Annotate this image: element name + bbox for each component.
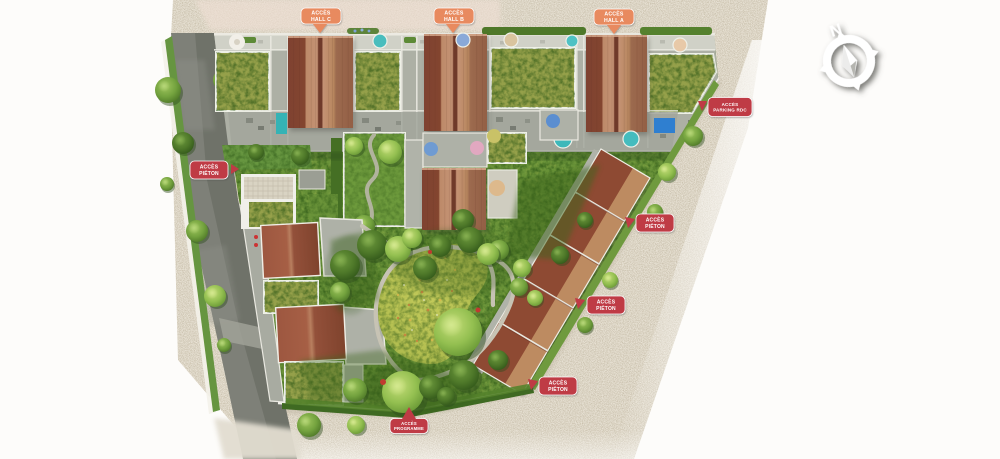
svg-text:PIÉTON: PIÉTON [645,222,665,230]
svg-text:ACCÈS: ACCÈS [604,10,623,18]
svg-text:ACCÈS: ACCÈS [549,379,568,387]
svg-text:HALL C: HALL C [311,17,331,23]
svg-text:ACCÈS: ACCÈS [401,421,417,426]
svg-text:PROGRAMME: PROGRAMME [394,426,424,431]
svg-text:ACCÈS: ACCÈS [646,216,665,224]
svg-text:ACCÈS: ACCÈS [444,9,463,17]
svg-text:PIÉTON: PIÉTON [548,385,568,393]
svg-text:ACCÈS: ACCÈS [200,163,219,171]
svg-text:ACCÈS: ACCÈS [597,298,616,306]
svg-text:ACCÈS: ACCÈS [722,100,739,107]
svg-text:ACCÈS: ACCÈS [311,9,330,17]
svg-text:PIÉTON: PIÉTON [596,304,616,312]
svg-text:PARKING RDC: PARKING RDC [713,108,747,113]
svg-text:HALL B: HALL B [444,17,464,23]
svg-text:HALL A: HALL A [604,18,624,24]
svg-text:PIÉTON: PIÉTON [199,169,219,177]
